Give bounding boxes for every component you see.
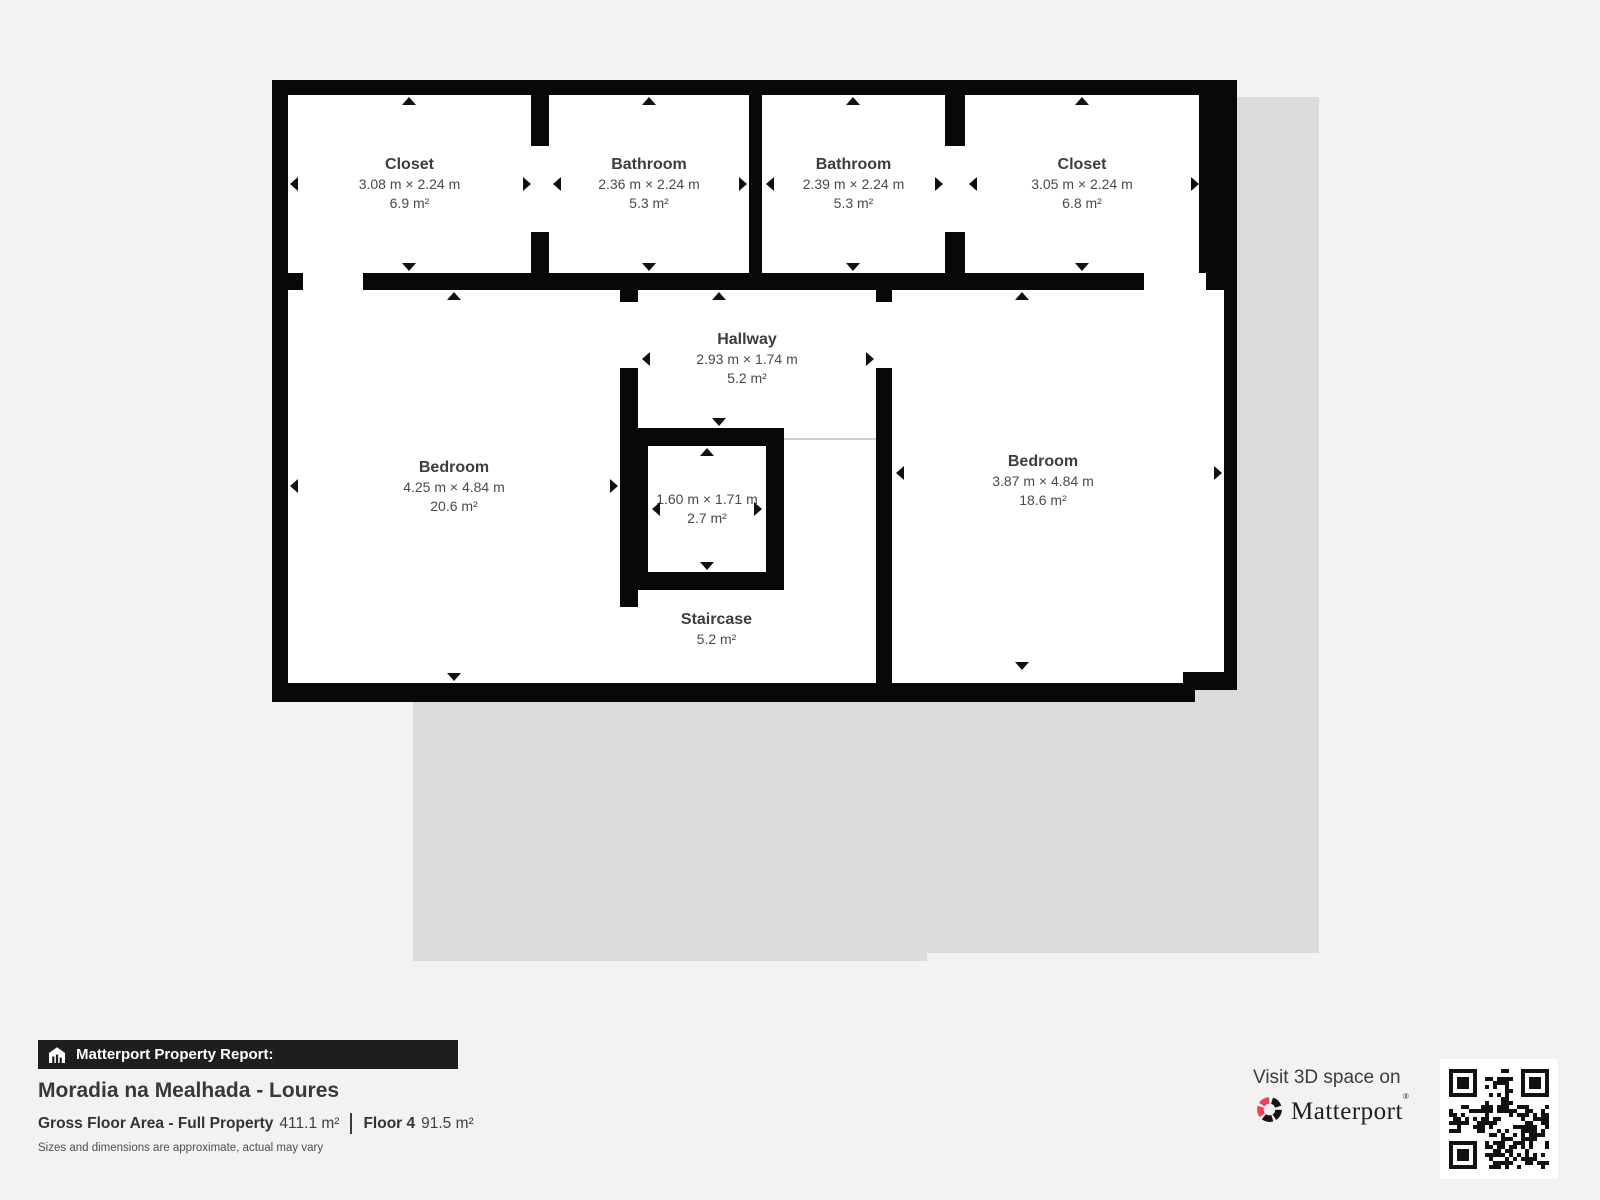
measure-arrow-l — [290, 177, 298, 191]
qr-code — [1449, 1069, 1549, 1169]
lower-floor-outline-bottom — [413, 700, 1319, 953]
measure-arrow-r — [866, 352, 874, 366]
room-bathroom-left — [549, 95, 749, 273]
measure-arrow-r — [754, 502, 762, 516]
measure-arrow-l — [652, 502, 660, 516]
measure-arrow-d — [846, 263, 860, 271]
measure-arrow-l — [766, 177, 774, 191]
measure-arrow-r — [935, 177, 943, 191]
matterport-pinwheel-icon — [1254, 1094, 1285, 1125]
door-bathroom-closet-tr — [943, 146, 967, 232]
measure-arrow-d — [402, 263, 416, 271]
property-title: Moradia na Mealhada - Loures — [38, 1079, 339, 1103]
room-bedroom-left — [288, 290, 620, 683]
measure-arrow-u — [1075, 97, 1089, 105]
gfa-value: 411.1 m² — [279, 1115, 339, 1133]
measure-arrow-d — [712, 418, 726, 426]
door-staircase-left — [618, 607, 640, 683]
measure-arrow-r — [523, 177, 531, 191]
house-report-icon — [48, 1046, 66, 1064]
measure-arrow-u — [846, 97, 860, 105]
measure-arrow-l — [896, 466, 904, 480]
report-banner-label: Matterport Property Report: — [76, 1046, 274, 1063]
measure-arrow-l — [553, 177, 561, 191]
measure-arrow-r — [1214, 466, 1222, 480]
matterport-wordmark: Matterport® — [1291, 1092, 1410, 1126]
measure-arrow-u — [700, 448, 714, 456]
measure-arrow-u — [712, 292, 726, 300]
measure-arrow-u — [402, 97, 416, 105]
measure-arrow-l — [290, 479, 298, 493]
measure-arrow-l — [642, 352, 650, 366]
measure-arrow-u — [447, 292, 461, 300]
room-closet-top-right — [965, 95, 1199, 273]
gfa-label: Gross Floor Area - Full Property — [38, 1115, 273, 1133]
visit-3d-text: Visit 3D space on — [1253, 1067, 1393, 1089]
hallway-staircase-divider — [784, 438, 876, 440]
door-hallway-right — [874, 302, 896, 368]
info-divider — [350, 1113, 352, 1134]
measure-arrow-d — [447, 673, 461, 681]
disclaimer-text: Sizes and dimensions are approximate, ac… — [38, 1142, 323, 1154]
floor-value: 91.5 m² — [421, 1115, 474, 1133]
measure-arrow-r — [610, 479, 618, 493]
measure-arrow-d — [700, 562, 714, 570]
qr-code-card — [1440, 1059, 1558, 1179]
door-closet-tl-bottom — [303, 273, 363, 290]
page: { "plan": { "rooms": [ {"id": "closet-to… — [0, 0, 1600, 1200]
report-banner: Matterport Property Report: — [38, 1040, 458, 1069]
measure-arrow-d — [1015, 662, 1029, 670]
door-closet-tr-bottom — [1144, 273, 1206, 290]
measure-arrow-r — [739, 177, 747, 191]
measure-arrow-u — [642, 97, 656, 105]
area-info-row: Gross Floor Area - Full Property 411.1 m… — [38, 1113, 474, 1134]
measure-arrow-d — [642, 263, 656, 271]
lower-floor-outline-step — [413, 953, 927, 961]
matterport-logo: Matterport® — [1254, 1092, 1410, 1126]
room-bathroom-right — [762, 95, 945, 273]
floor-plan: Closet 3.08 m × 2.24 m 6.9 m² Bathroom 2… — [272, 80, 1237, 702]
door-hallway-left — [618, 302, 640, 368]
measure-arrow-l — [969, 177, 977, 191]
room-bedroom-right — [892, 290, 1224, 672]
measure-arrow-d — [1075, 263, 1089, 271]
measure-arrow-u — [1015, 292, 1029, 300]
room-closet-top-left — [288, 95, 531, 273]
floor-label: Floor 4 — [363, 1115, 415, 1133]
room-small-closet — [648, 446, 766, 572]
door-closet-tl-bathroom — [529, 146, 551, 232]
measure-arrow-r — [1191, 177, 1199, 191]
room-bedroom-right-notch — [892, 672, 1183, 683]
